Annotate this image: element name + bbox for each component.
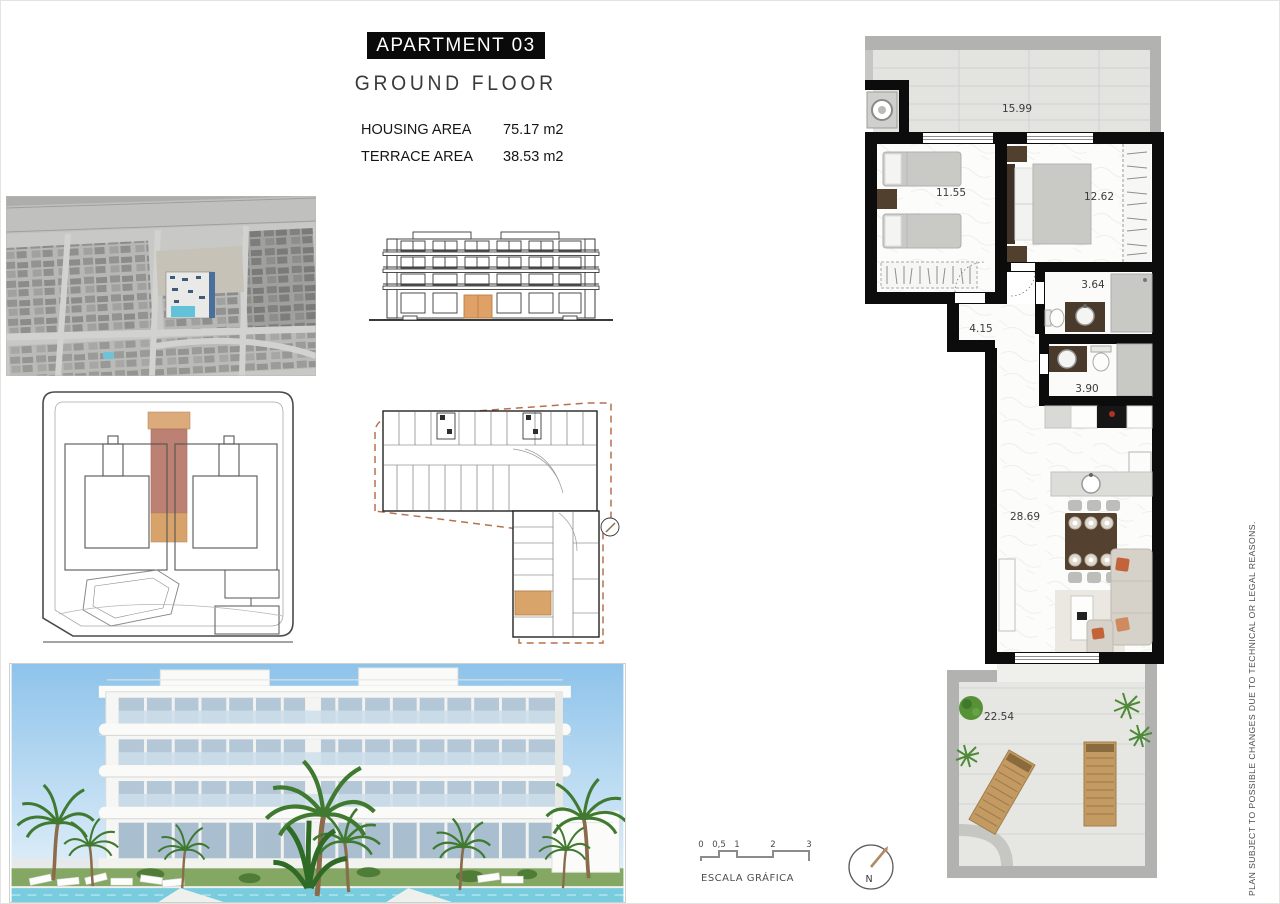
garage-plan-drawing (363, 393, 627, 651)
wardrobe (1123, 144, 1151, 262)
scale-tick: 2 (770, 840, 775, 850)
room-area-label: 3.64 (1081, 279, 1105, 291)
pool-outline (83, 570, 179, 626)
nightstand (877, 189, 897, 209)
room-bedroom-1: 11.55 (877, 144, 995, 292)
north-compass: N (839, 835, 903, 899)
room-area-label: 28.69 (1010, 511, 1040, 523)
room-area-label: 15.99 (1002, 103, 1032, 115)
scale-tick: 3 (806, 840, 811, 850)
site-pool (171, 306, 195, 317)
kitchen-island (1051, 472, 1152, 496)
sink-icon (1082, 475, 1100, 493)
building-elevation-drawing (363, 223, 619, 335)
north-label: N (865, 874, 872, 885)
terrace-area-value: 38.53 m2 (503, 149, 563, 165)
wardrobe (881, 262, 977, 288)
sliding-door (1015, 653, 1099, 663)
floor-slabs (383, 250, 599, 290)
room-area-label: 4.15 (969, 323, 992, 335)
room-terrace-top: 15.99 (865, 36, 1161, 132)
sink-icon (1049, 346, 1087, 372)
plant-icon (959, 696, 983, 720)
room-terrace-bottom: 22.54 (947, 664, 1157, 878)
terrace-area-label: TERRACE AREA (361, 149, 489, 165)
room-area-label: 22.54 (984, 711, 1014, 723)
apartment-floor-plan: 15.99 (859, 24, 1164, 894)
highlighted-unit-strip (148, 412, 190, 542)
housing-area-row: HOUSING AREA 75.17 m2 (361, 122, 563, 138)
terrace-area-row: TERRACE AREA 38.53 m2 (361, 149, 563, 165)
highlighted-storage-cell (515, 591, 551, 615)
apartment-title-text: APARTMENT 03 (376, 35, 536, 57)
shower (1111, 274, 1152, 332)
housing-area-value: 75.17 m2 (503, 122, 563, 138)
highlighted-unit (464, 295, 492, 318)
toilet-icon (1091, 346, 1111, 371)
double-bed (1007, 164, 1091, 244)
room-area-label: 11.55 (936, 187, 966, 199)
sun-lounger (1084, 742, 1116, 826)
north-arrow-icon (871, 846, 888, 867)
housing-area-label: HOUSING AREA (361, 122, 489, 138)
cooktop-icon (1097, 406, 1127, 428)
room-area-label: 3.90 (1075, 383, 1098, 395)
amenity-buildings (215, 570, 279, 634)
scale-tick: 0,5 (712, 840, 726, 850)
twin-bed (883, 152, 961, 186)
ramp-symbol (601, 518, 619, 536)
plan-sheet: APARTMENT 03 GROUND FLOOR HOUSING AREA 7… (0, 0, 1280, 904)
floor-title: GROUND FLOOR (331, 72, 581, 96)
apartment-building (99, 668, 571, 870)
room-bathroom-1: 3.64 (1035, 272, 1152, 334)
area-summary: HOUSING AREA 75.17 m2 TERRACE AREA 38.53… (361, 122, 563, 176)
legal-disclaimer: PLAN SUBJECT TO POSSIBLE CHANGES DUE TO … (1247, 521, 1257, 896)
nightstand (1007, 246, 1027, 262)
twin-bed (883, 214, 961, 248)
scale-tick: 1 (734, 840, 739, 850)
scale-bar-label: ESCALA GRÁFICA (701, 871, 794, 884)
apartment-title: APARTMENT 03 (367, 32, 545, 59)
room-bedroom-2: 12.62 (1007, 144, 1151, 262)
nightstand (1007, 146, 1027, 162)
site-plan-drawing (29, 384, 313, 658)
aerial-location-map (6, 196, 316, 376)
scale-tick: 0 (698, 840, 703, 850)
toilet-icon (1045, 309, 1064, 327)
building-render-image (9, 663, 626, 903)
room-area-label: 12.62 (1084, 191, 1114, 203)
washing-machine-icon (867, 92, 897, 128)
shower (1117, 344, 1152, 396)
sink-icon (1065, 302, 1105, 332)
tv-cabinet (999, 559, 1015, 631)
